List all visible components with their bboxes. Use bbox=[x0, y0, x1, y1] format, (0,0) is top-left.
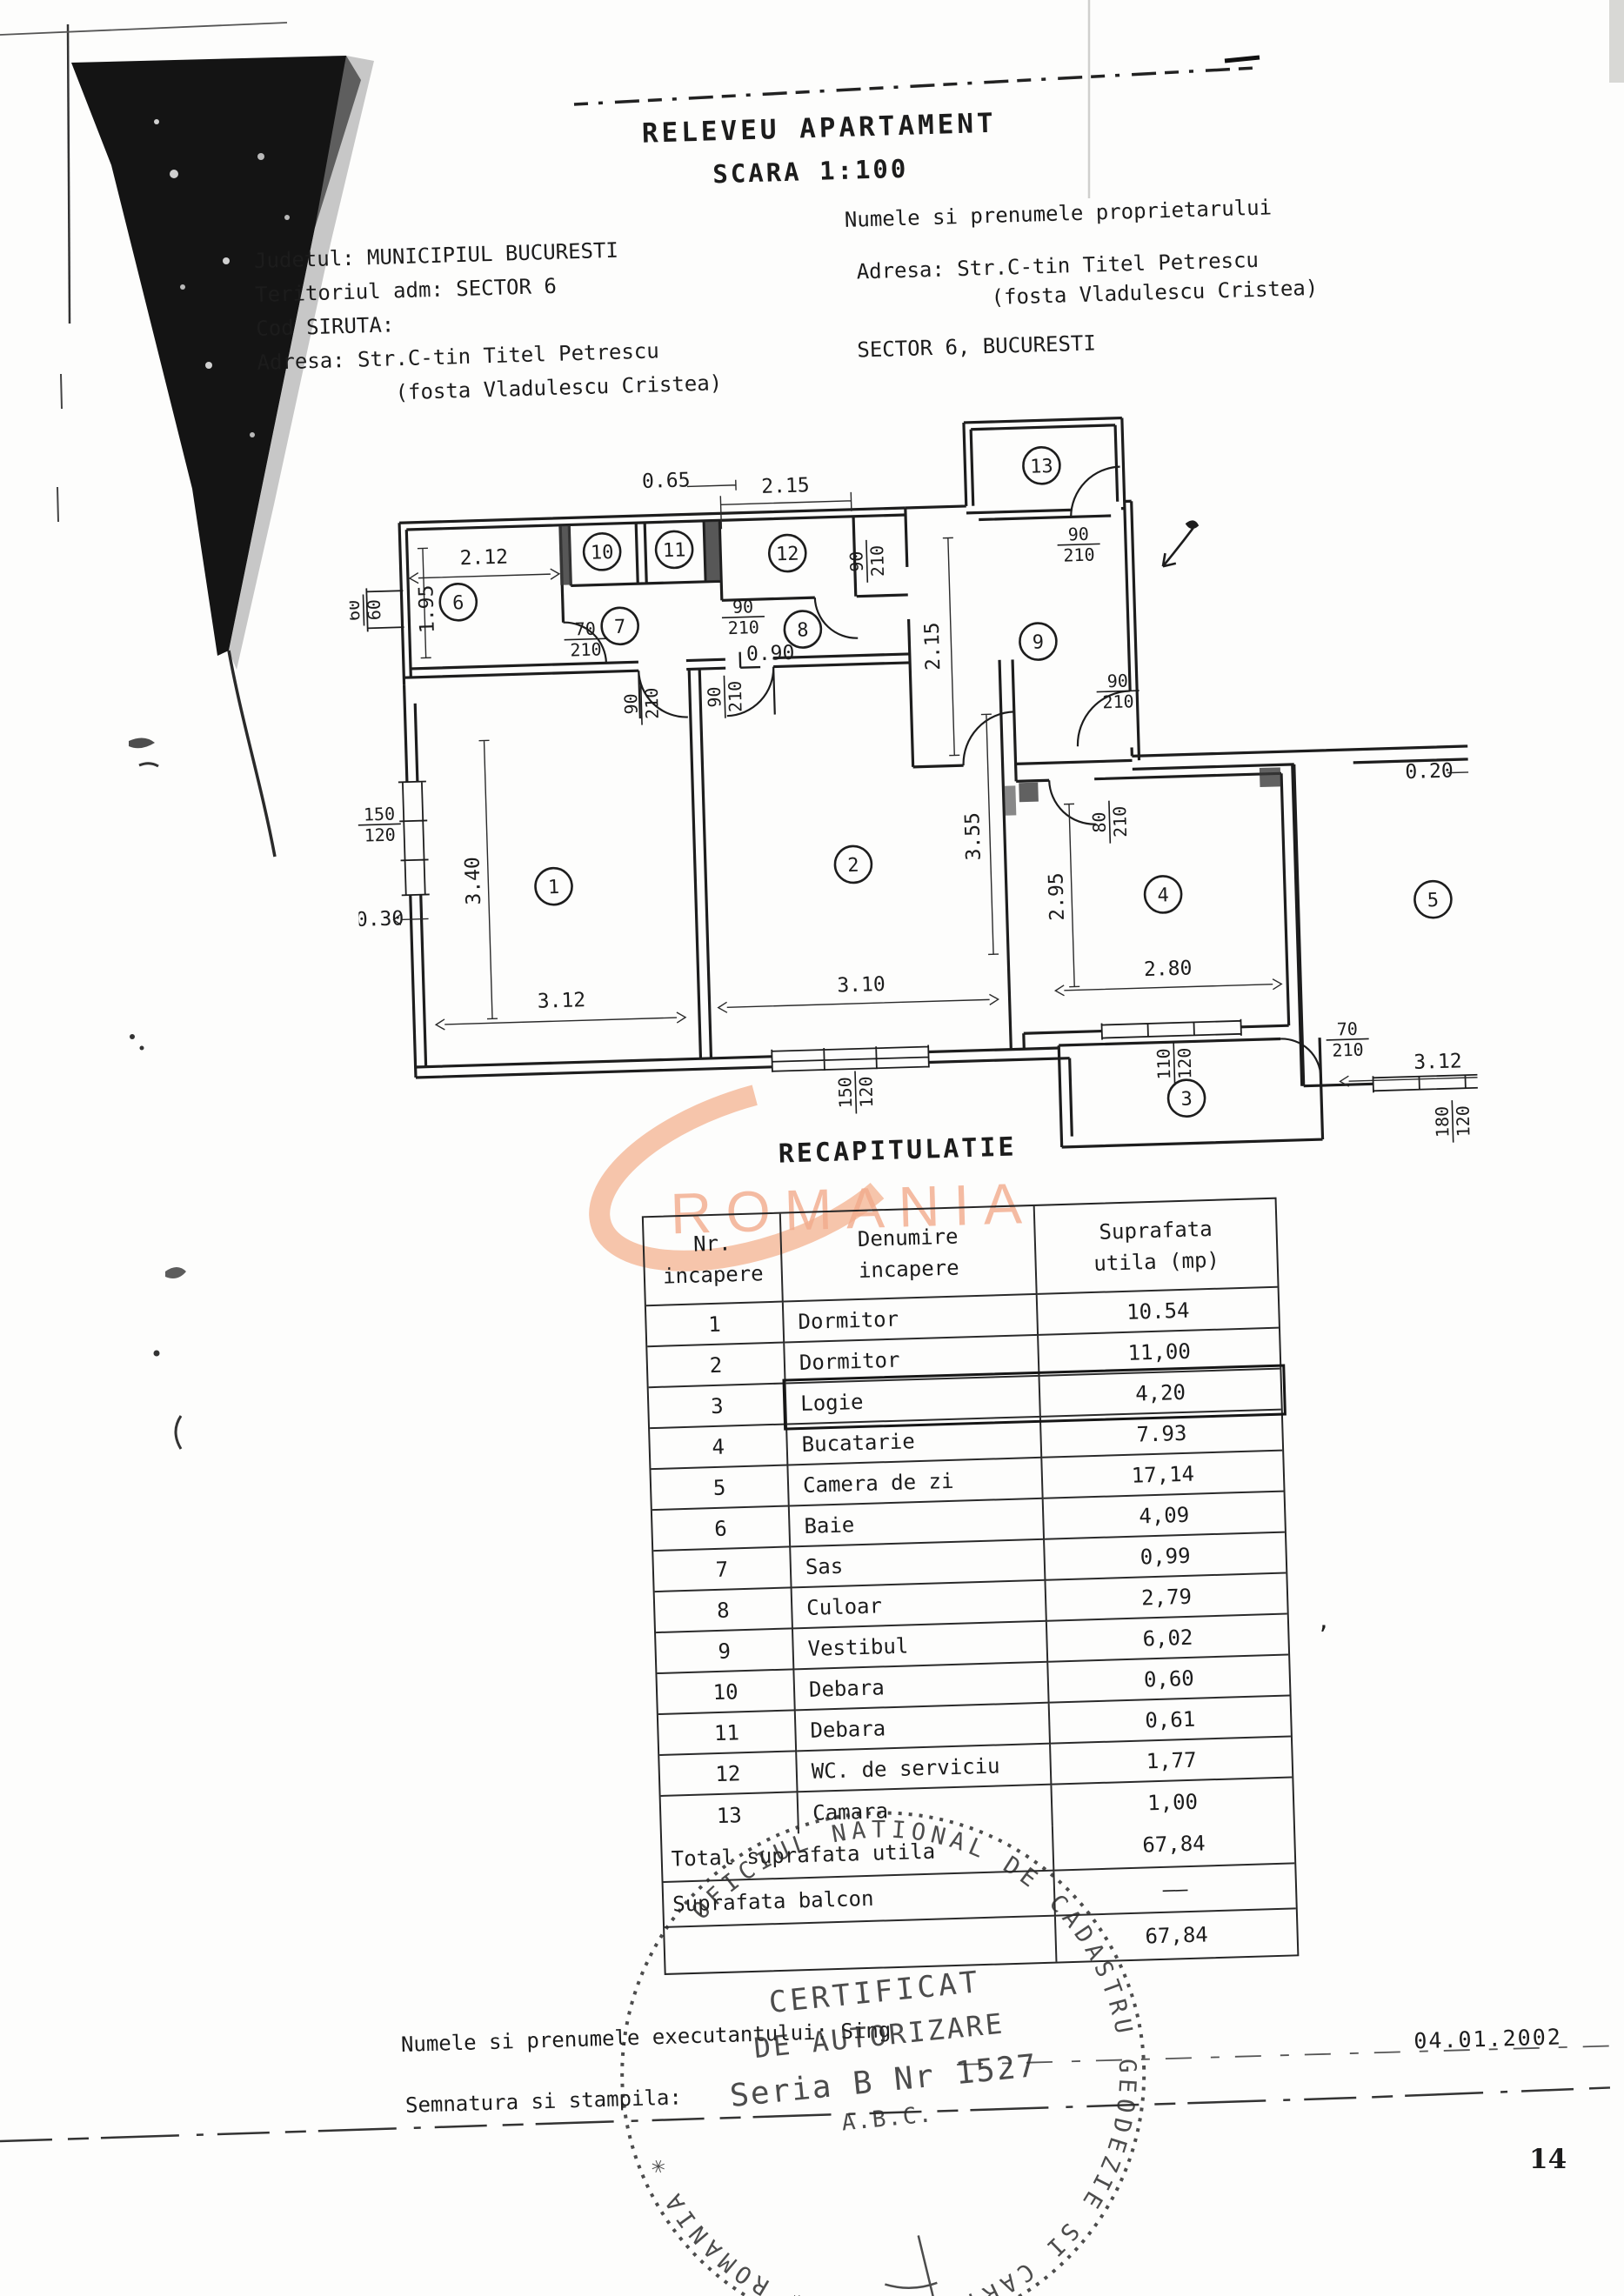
room-number: 12 bbox=[776, 544, 799, 566]
dimension-label: 3.40 bbox=[461, 857, 485, 905]
dimension-label: 3.12 bbox=[1413, 1050, 1462, 1074]
row-number: 8 bbox=[655, 1588, 793, 1633]
fraction-numerator: 70 bbox=[574, 618, 596, 640]
dimension-label: 3.10 bbox=[837, 973, 886, 998]
row-number: 6 bbox=[652, 1506, 791, 1552]
room-area: 17,14 bbox=[1042, 1452, 1283, 1499]
room-area: 1,77 bbox=[1051, 1737, 1292, 1785]
dimension-label: 0.20 bbox=[1405, 759, 1454, 784]
room-area: 0,61 bbox=[1050, 1696, 1291, 1744]
room-number: 2 bbox=[847, 855, 859, 877]
fraction-numerator: 110 bbox=[1153, 1048, 1174, 1080]
room-number-circle: 5 bbox=[1414, 881, 1452, 918]
fraction-numerator: 80 bbox=[1088, 811, 1110, 833]
fraction-denominator: 210 bbox=[866, 545, 888, 577]
floor-plan: 12345678910111213 0.652.152.121.950.902.… bbox=[344, 377, 1480, 1175]
fraction-denominator: 120 bbox=[1173, 1047, 1195, 1079]
fraction-denominator: 120 bbox=[1452, 1105, 1474, 1138]
fraction-denominator: 120 bbox=[364, 824, 396, 846]
fraction-denominator: 210 bbox=[1109, 805, 1131, 838]
row-number: 9 bbox=[656, 1629, 794, 1674]
room-number-circle: 2 bbox=[834, 845, 872, 883]
row-number: 10 bbox=[657, 1670, 795, 1715]
dimension-label: 2.12 bbox=[459, 546, 508, 571]
room-area: 0,60 bbox=[1048, 1656, 1289, 1704]
fraction-denominator: 210 bbox=[1102, 691, 1134, 712]
owner-sector: SECTOR 6, BUCURESTI bbox=[857, 330, 1096, 362]
room-area: 0,99 bbox=[1045, 1533, 1286, 1581]
row-number: 1 bbox=[646, 1303, 785, 1348]
fraction-denominator: 210 bbox=[725, 680, 746, 712]
fraction-numerator: 60 bbox=[344, 599, 364, 621]
dimension-label: 3.12 bbox=[537, 989, 585, 1013]
dimension-lines bbox=[381, 456, 1480, 1114]
stamp-line4: A.B.C. bbox=[840, 2101, 934, 2136]
fraction-numerator: 90 bbox=[1067, 524, 1089, 545]
fraction-dimension-label: 80210 bbox=[1088, 800, 1131, 844]
fraction-dimension-label: 110120 bbox=[1153, 1042, 1195, 1085]
col-header-nr-line1: Nr. bbox=[693, 1227, 732, 1259]
fraction-denominator: 60 bbox=[364, 599, 385, 621]
dimension-label: 2.95 bbox=[1045, 872, 1069, 921]
document-scale: SCARA 1:100 bbox=[712, 154, 909, 190]
room-number-circle: 13 bbox=[1023, 447, 1060, 484]
room-number-circle: 1 bbox=[535, 868, 572, 905]
room-number: 13 bbox=[1030, 456, 1053, 478]
fraction-dimension-label: 90210 bbox=[1096, 670, 1139, 712]
dimension-label: 0.65 bbox=[642, 469, 691, 493]
fraction-numerator: 90 bbox=[704, 686, 725, 708]
fraction-dimension-label: 70210 bbox=[1326, 1018, 1369, 1060]
fraction-numerator: 150 bbox=[364, 804, 396, 825]
dimension-label: 0.30 bbox=[356, 907, 404, 931]
room-number: 9 bbox=[1032, 631, 1044, 653]
room-number-circle: 11 bbox=[655, 531, 692, 568]
fraction-dimension-label: 90210 bbox=[845, 539, 888, 583]
fraction-denominator: 210 bbox=[641, 687, 663, 719]
fraction-numerator: 90 bbox=[1106, 670, 1128, 691]
fraction-numerator: 90 bbox=[620, 693, 642, 715]
room-area: 10.54 bbox=[1038, 1288, 1279, 1336]
room-number: 11 bbox=[663, 540, 686, 563]
recap-title: RECAPITULATIE bbox=[778, 1132, 1017, 1170]
row-number: 7 bbox=[653, 1547, 792, 1592]
room-number-circle: 12 bbox=[769, 534, 806, 571]
document-date: 04.01.2002 bbox=[1413, 2024, 1562, 2053]
fraction-dimension-label: 90210 bbox=[1057, 523, 1100, 565]
fraction-dimension-label: 90210 bbox=[721, 596, 765, 638]
row-number: 5 bbox=[651, 1465, 789, 1511]
room-area: 6,02 bbox=[1047, 1615, 1288, 1663]
room-area: 4,09 bbox=[1044, 1492, 1285, 1540]
col-header-suprafata: Suprafata utila (mp) bbox=[1035, 1199, 1278, 1295]
row-number: 3 bbox=[649, 1385, 787, 1430]
room-number: 10 bbox=[591, 542, 614, 564]
room-number: 3 bbox=[1180, 1089, 1193, 1111]
col-header-suprafata-line2: utila (mp) bbox=[1093, 1245, 1220, 1279]
fraction-numerator: 90 bbox=[732, 596, 754, 617]
room-number-circle: 3 bbox=[1167, 1079, 1205, 1117]
header-left-block: Judetul: MUNICIPIUL BUCURESTI Teritoriul… bbox=[253, 230, 722, 413]
fraction-numerator: 180 bbox=[1431, 1106, 1453, 1138]
room-number: 4 bbox=[1157, 884, 1169, 906]
fraction-denominator: 210 bbox=[1332, 1039, 1364, 1061]
fraction-denominator: 210 bbox=[1063, 544, 1095, 566]
room-area: 11,00 bbox=[1039, 1329, 1280, 1377]
room-number-circle: 9 bbox=[1019, 623, 1057, 660]
row-number: 12 bbox=[659, 1752, 798, 1797]
room-number-circle: 4 bbox=[1144, 876, 1181, 913]
row-number: 2 bbox=[647, 1344, 785, 1389]
room-number: 1 bbox=[548, 877, 560, 898]
room-number-circle: 6 bbox=[439, 584, 477, 621]
dimension-label: 2.15 bbox=[761, 474, 810, 498]
fraction-dimension-label: 90210 bbox=[703, 675, 745, 718]
room-area: 7.93 bbox=[1041, 1411, 1282, 1458]
fraction-denominator: 210 bbox=[570, 638, 602, 660]
stray-apostrophe: ’ bbox=[1316, 1622, 1331, 1648]
fraction-dimension-label: 180120 bbox=[1431, 1099, 1474, 1143]
room-area: 4,20 bbox=[1039, 1370, 1280, 1418]
fraction-numerator: 90 bbox=[845, 551, 867, 572]
room-number: 8 bbox=[797, 619, 809, 641]
col-header-denumire-line1: Denumire bbox=[857, 1221, 959, 1255]
dimension-label: 0.90 bbox=[746, 642, 795, 666]
row-number: 11 bbox=[658, 1711, 797, 1756]
col-header-suprafata-line1: Suprafata bbox=[1099, 1213, 1213, 1248]
col-header-nr: Nr. incapere bbox=[644, 1214, 784, 1307]
fraction-dimension-label: 6060 bbox=[344, 594, 384, 626]
fraction-dimension-label: 150120 bbox=[358, 803, 401, 845]
fraction-dimension-label: 90210 bbox=[620, 682, 663, 725]
col-header-denumire-line2: incapere bbox=[858, 1252, 959, 1286]
room-number: 5 bbox=[1427, 890, 1439, 911]
scanned-document-page: 14 RELEVEU APARTAMENT SCARA 1:100 Judetu… bbox=[0, 0, 1624, 2296]
row-number: 4 bbox=[650, 1425, 788, 1470]
fraction-denominator: 210 bbox=[727, 617, 759, 638]
room-number-circle: 10 bbox=[584, 533, 621, 571]
owner-label: Numele si prenumele proprietarului bbox=[845, 195, 1273, 232]
document-title: RELEVEU APARTAMENT bbox=[641, 108, 997, 150]
dimension-label: 3.55 bbox=[961, 812, 986, 861]
dimension-label: 2.80 bbox=[1144, 957, 1193, 981]
room-number: 7 bbox=[614, 617, 626, 638]
authorization-stamp: OFICIUL NATIONAL DE CADASTRU GEODEZIE SI… bbox=[558, 1788, 1209, 2296]
entrance-arrow-icon bbox=[1161, 521, 1198, 566]
room-area: 2,79 bbox=[1046, 1574, 1287, 1622]
dimension-label: 2.15 bbox=[921, 622, 946, 671]
dimension-label: 1.95 bbox=[415, 584, 439, 633]
plan-walls bbox=[397, 404, 1480, 1166]
room-number: 6 bbox=[452, 592, 464, 614]
col-header-denumire: Denumire incapere bbox=[781, 1206, 1038, 1303]
col-header-nr-line2: incapere bbox=[663, 1258, 765, 1291]
fraction-numerator: 70 bbox=[1336, 1018, 1358, 1040]
owner-adresa2: (fosta Vladulescu Cristea) bbox=[991, 276, 1318, 310]
